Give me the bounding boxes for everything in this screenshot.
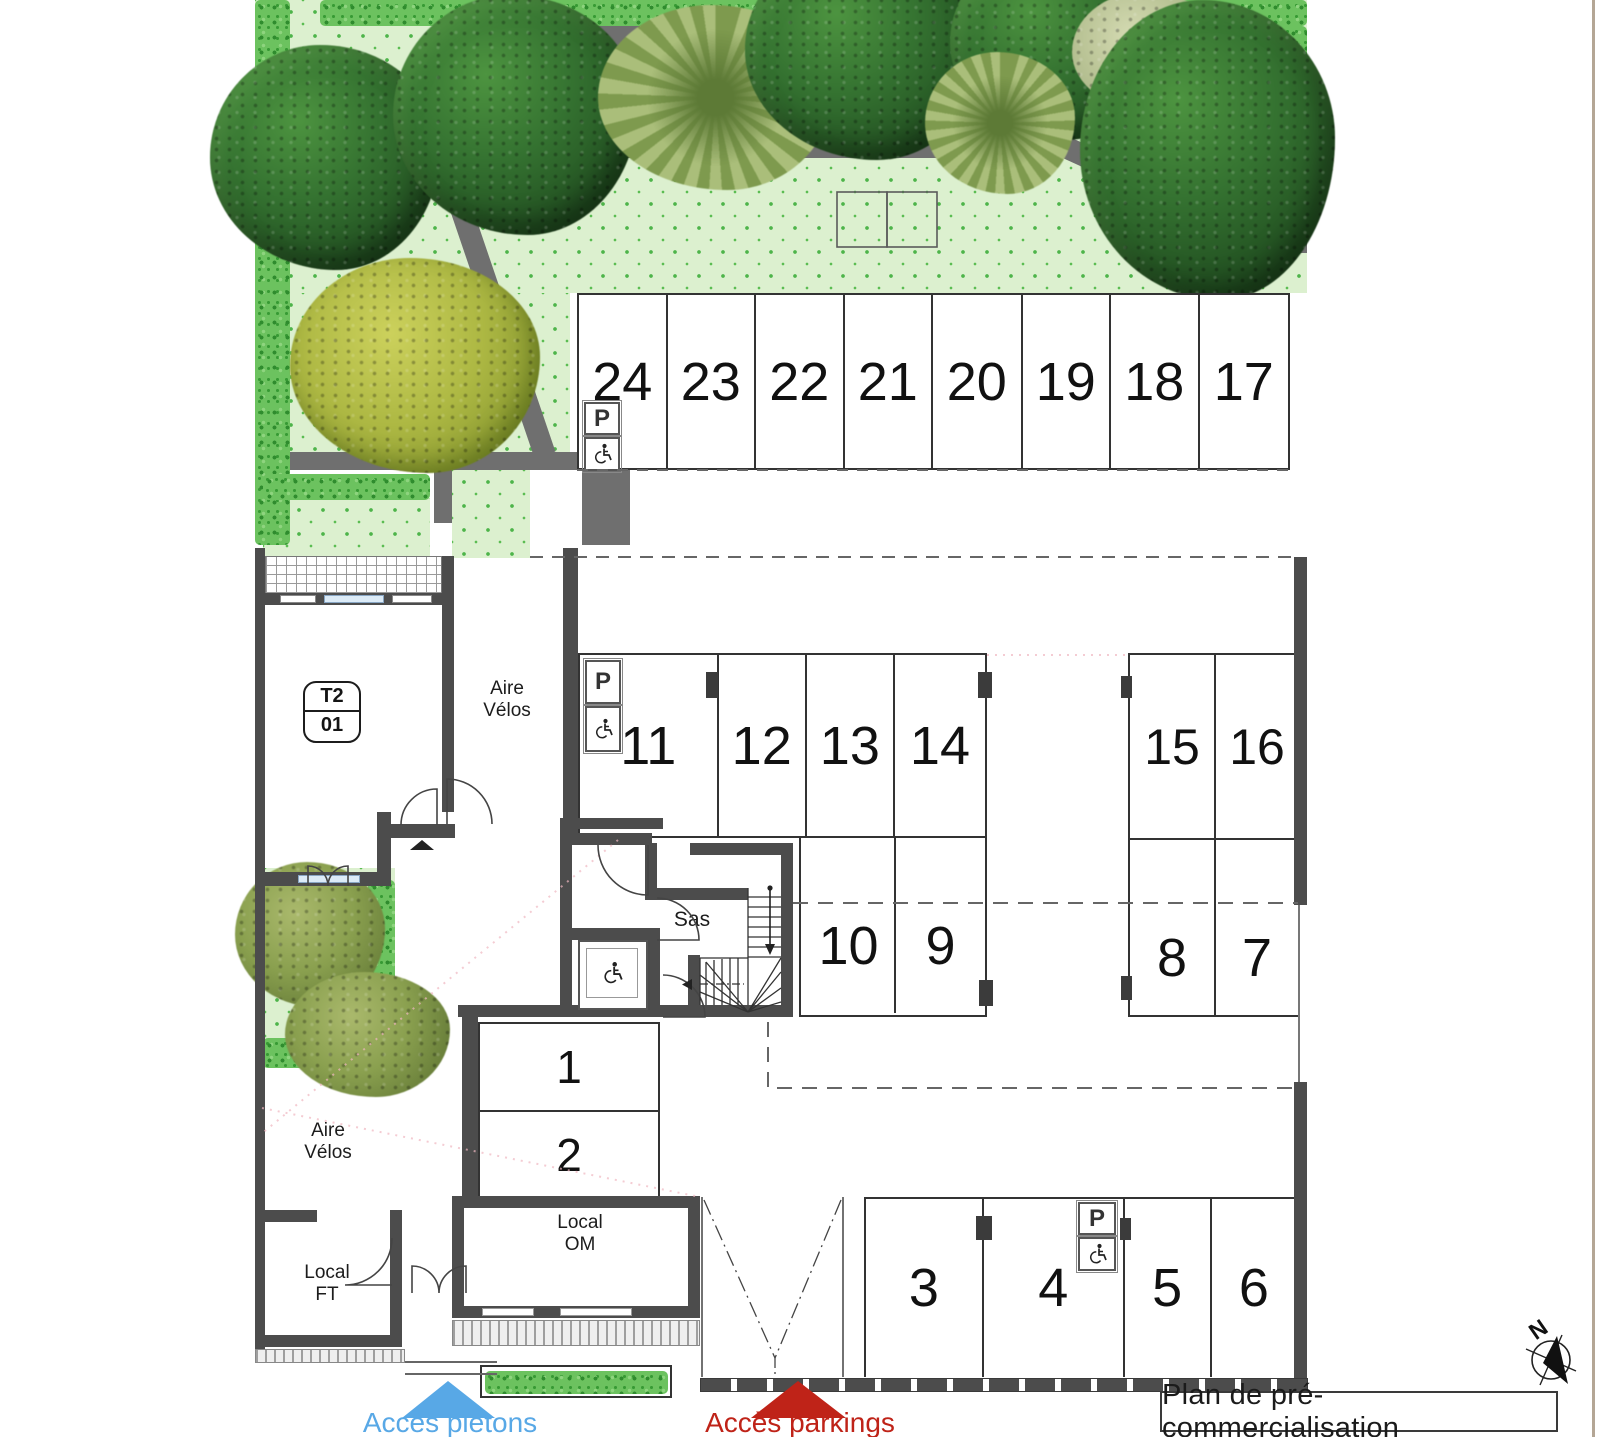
parking-access-label: Accès parkings (705, 1407, 895, 1437)
north-label: N (1524, 1314, 1553, 1345)
pedestrian-access-label: Accès piétons (360, 1407, 540, 1437)
north-compass: N (1524, 1314, 1576, 1385)
site-plan: 24 23 22 21 20 19 18 17 P 11 12 13 14 P (0, 0, 1600, 1437)
plan-title: Plan de pré-commercialisation (1160, 1391, 1558, 1432)
plan-linework: N (0, 0, 1600, 1437)
